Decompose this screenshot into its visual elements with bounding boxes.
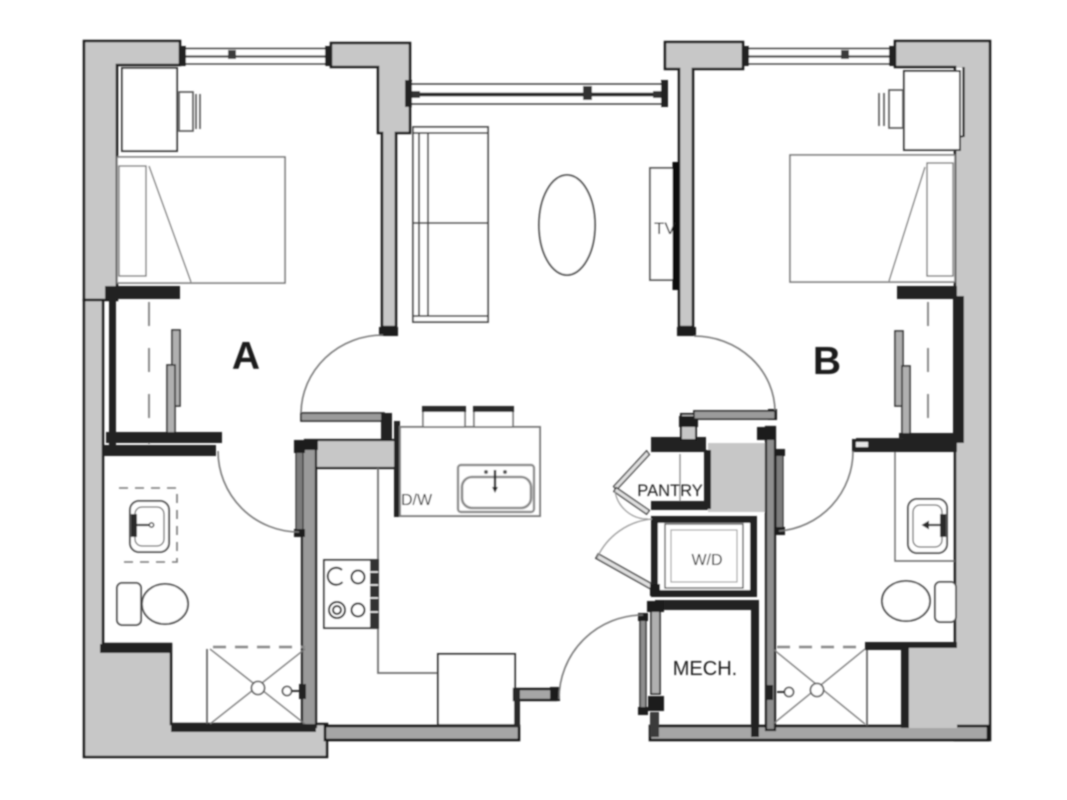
svg-text:B: B — [813, 340, 841, 383]
svg-text:PANTRY: PANTRY — [637, 482, 702, 500]
svg-text:D/W: D/W — [401, 492, 433, 509]
svg-text:TV: TV — [654, 219, 676, 238]
svg-text:W/D: W/D — [691, 552, 722, 569]
svg-text:MECH.: MECH. — [673, 658, 737, 680]
svg-text:A: A — [232, 335, 260, 378]
